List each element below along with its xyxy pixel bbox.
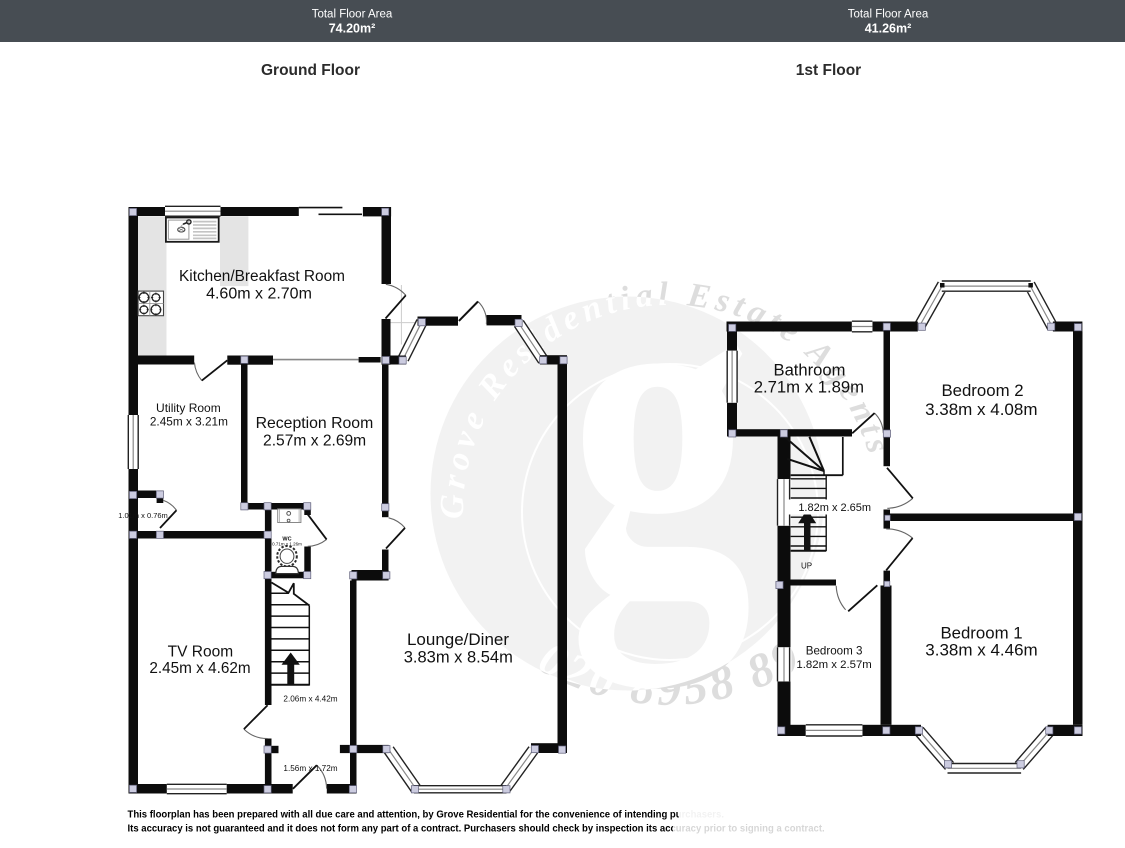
svg-text:1st Floor: 1st Floor: [796, 62, 861, 79]
svg-text:4.60m x 2.70m: 4.60m x 2.70m: [206, 285, 312, 302]
svg-text:Kitchen/Breakfast Room: Kitchen/Breakfast Room: [179, 268, 345, 285]
svg-text:1.01m x 0.76m: 1.01m x 0.76m: [118, 511, 168, 520]
svg-text:3.38m x 4.08m: 3.38m x 4.08m: [925, 400, 1037, 419]
svg-text:Total Floor Area: Total Floor Area: [848, 9, 929, 21]
svg-text:Total Floor Area: Total Floor Area: [312, 9, 393, 21]
svg-text:Lounge/Diner: Lounge/Diner: [407, 630, 509, 649]
svg-text:0.71m x 1.26m: 0.71m x 1.26m: [272, 541, 302, 546]
svg-text:1.56m x 1.72m: 1.56m x 1.72m: [283, 764, 337, 773]
svg-text:1.82m x 2.65m: 1.82m x 2.65m: [798, 502, 871, 514]
svg-text:2.45m x 3.21m: 2.45m x 3.21m: [150, 415, 228, 429]
svg-text:41.26m²: 41.26m²: [865, 22, 912, 36]
svg-text:Utility Room: Utility Room: [156, 401, 221, 415]
svg-text:2.71m x 1.89m: 2.71m x 1.89m: [754, 378, 864, 397]
svg-text:3.83m x 8.54m: 3.83m x 8.54m: [404, 649, 513, 667]
svg-text:This floorplan has been prepar: This floorplan has been prepared with al…: [128, 809, 725, 821]
svg-text:1.82m x 2.57m: 1.82m x 2.57m: [796, 659, 871, 671]
svg-text:3.38m x 4.46m: 3.38m x 4.46m: [925, 641, 1037, 660]
svg-text:2.45m x 4.62m: 2.45m x 4.62m: [149, 660, 250, 677]
svg-text:Bedroom 2: Bedroom 2: [941, 381, 1023, 400]
svg-text:TV Room: TV Room: [168, 644, 233, 661]
svg-text:2.06m x 4.42m: 2.06m x 4.42m: [283, 694, 337, 703]
svg-text:2.57m x 2.69m: 2.57m x 2.69m: [263, 433, 366, 450]
svg-text:74.20m²: 74.20m²: [329, 22, 376, 36]
svg-text:Bedroom 3: Bedroom 3: [806, 645, 863, 658]
svg-text:UP: UP: [801, 562, 812, 571]
svg-text:Ground Floor: Ground Floor: [261, 62, 360, 79]
svg-text:Reception Room: Reception Room: [256, 415, 374, 432]
svg-text:Bathroom: Bathroom: [774, 360, 846, 379]
